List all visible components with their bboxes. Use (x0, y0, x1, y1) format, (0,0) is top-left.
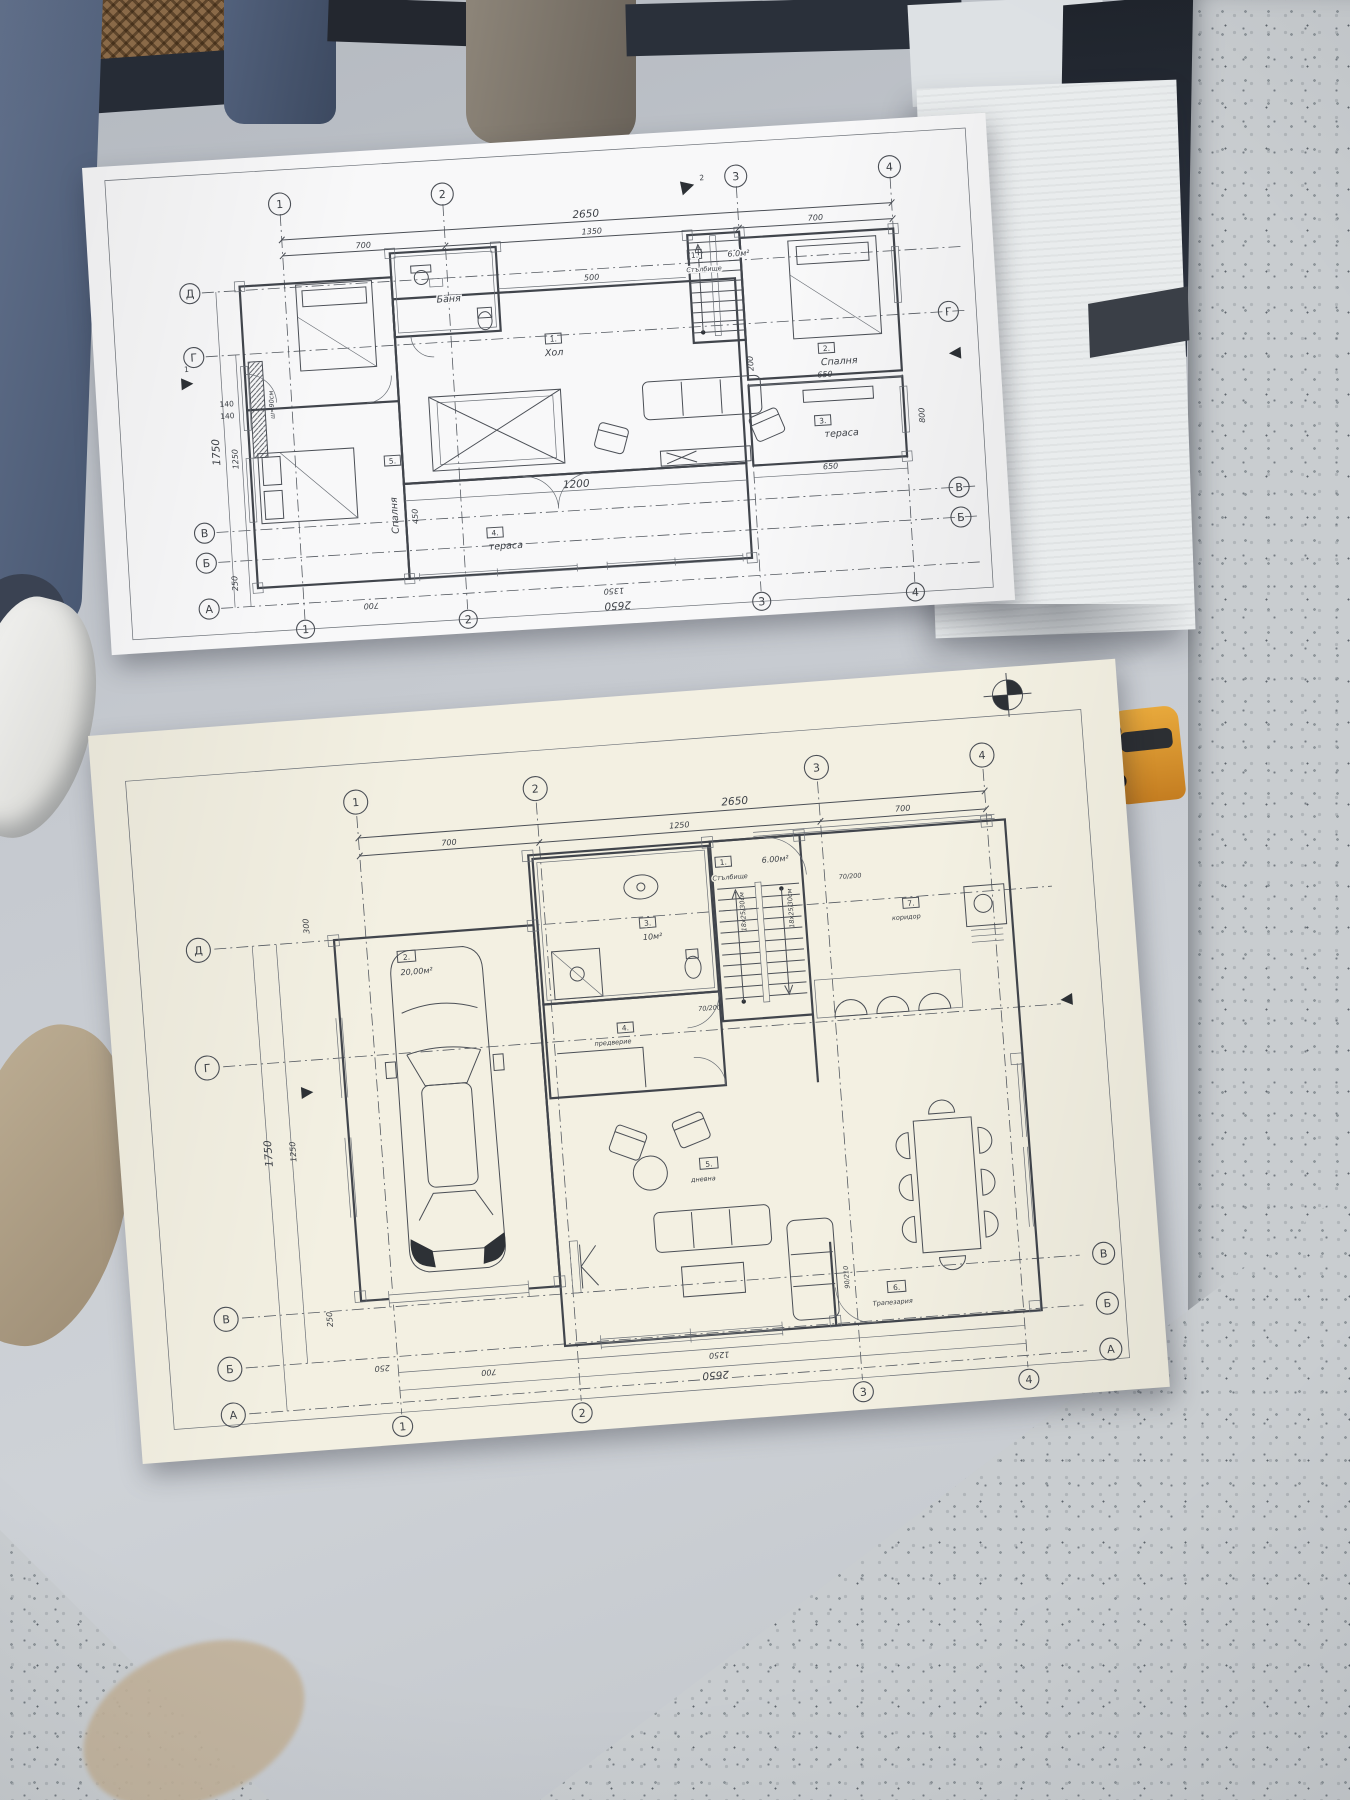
dim-250-bottom: 250 (374, 1363, 390, 1373)
dim-1250-v: 1250 (288, 1141, 299, 1162)
stairs-area: 6.00м² (761, 854, 789, 865)
dim-700-bottom: 700 (481, 1367, 497, 1377)
tag-dining: 6. (893, 1283, 901, 1293)
dim-700-left: 700 (355, 241, 371, 251)
tag-hall: 1. (549, 334, 557, 343)
axis-col-4b: 4 (1025, 1373, 1033, 1386)
dim-1250: 1250 (669, 820, 690, 831)
dim-200: 200 (746, 356, 756, 372)
dim-2650: 2650 (721, 795, 749, 809)
axis-col-1: 1 (352, 796, 360, 809)
axis-col-3b: 3 (758, 595, 766, 608)
axis-col-1b: 1 (302, 623, 310, 636)
section-mark-2: 2 (699, 173, 705, 182)
dim-2650-bottom: 2650 (702, 1368, 730, 1382)
room-label-dining: Трапезария (872, 1297, 913, 1308)
dim-250: 250 (230, 576, 240, 592)
bedroom-bottom-left-furniture (258, 448, 358, 524)
bedroom-top-left-furniture (244, 281, 382, 458)
dim-700-left: 700 (441, 838, 457, 848)
room-label-terrace4: тераса (488, 540, 523, 553)
axis-row-v: В (200, 527, 208, 540)
tag-entry: 4. (622, 1023, 630, 1033)
garage-area: 20,00м² (400, 966, 434, 977)
axis-col-1b: 1 (399, 1420, 407, 1433)
room-terrace4: 4. тераса (487, 526, 524, 553)
walls (238, 223, 913, 588)
section-marks (298, 993, 1075, 1099)
dim-700-right: 700 (808, 213, 824, 223)
dim-1350: 1350 (581, 226, 602, 236)
toy-car-windshield (1120, 727, 1174, 752)
windows (324, 814, 1040, 1368)
door-size-corridor: 70/200 (838, 871, 861, 881)
room-hall: 1. Хол (543, 333, 564, 359)
axis-row-v-right: В (1099, 1247, 1108, 1261)
dim-1250-bottom: 1250 (709, 1350, 730, 1361)
dim-2650: 2650 (572, 208, 600, 222)
axis-col-2b: 2 (578, 1407, 586, 1420)
floor-plan-sheet-ground: 1 2 3 4 1 2 3 4 Д Г В Б А В Б А (88, 659, 1170, 1464)
axis-grid (205, 764, 1088, 1425)
axis-row-b: Б (202, 557, 210, 570)
room-label-corridor: коридор (892, 912, 921, 922)
axis-row-b-right: Б (957, 511, 965, 524)
door-size-bath: 70/200 (698, 1003, 721, 1013)
walls (329, 819, 1042, 1360)
floor-plan-sheet-upper: 1 2 3 4 1 2 3 4 Д Г В Б А Г В Б (82, 113, 1015, 655)
section-marks: 1 2 (170, 158, 961, 406)
tag-bedroom5: 5. (389, 456, 397, 465)
stairs-area: 6.0м² (727, 248, 750, 258)
dim-250: 250 (325, 1312, 335, 1328)
dark-strap (327, 0, 484, 47)
axis-col-3: 3 (732, 170, 740, 183)
tag-bath: 3. (644, 918, 652, 928)
axis-row-b: Б (226, 1363, 235, 1377)
dining-room: 6. Трапезария (858, 1096, 1004, 1307)
dim-1250: 1250 (230, 449, 240, 470)
dim-650-a: 650 (817, 370, 833, 380)
axis-col-2: 2 (531, 782, 539, 795)
dim-700-right: 700 (895, 804, 911, 814)
dim-2650-bottom: 2650 (604, 598, 632, 612)
tag-terrace3: 3. (819, 416, 827, 425)
room-label-stairs: Стълбище (712, 872, 748, 883)
garage: 2. 20,00м² (377, 944, 519, 1274)
door-arcs (243, 326, 592, 527)
axis-row-a: А (205, 603, 214, 616)
axis-col-3b: 3 (859, 1385, 867, 1398)
axis-row-a-right: А (1107, 1343, 1116, 1357)
axis-row-v: В (222, 1313, 231, 1327)
photo-of-floor-plans: 1 2 3 4 1 2 3 4 Д Г В Б А Г В Б (0, 0, 1350, 1800)
tag-stairs: 1. (691, 251, 699, 260)
axis-col-4: 4 (886, 161, 894, 174)
room-label-living: дневна (690, 1174, 716, 1184)
room-label-stairs: Стълбище (686, 264, 722, 274)
room-entry: 4. предверие (555, 1021, 646, 1093)
dim-700-bottom: 700 (363, 601, 379, 611)
foam-model-gap (1088, 286, 1189, 358)
axis-row-g: Г (190, 351, 198, 364)
dim-1200: 1200 (563, 478, 591, 492)
dim-650-b: 650 (823, 461, 839, 471)
north-compass-icon (982, 671, 1033, 718)
room-bedroom2: 2. Спалня (818, 341, 858, 368)
tag-stairs: 1. (719, 857, 727, 867)
dim-140-a: 140 (219, 399, 234, 409)
axis-col-3: 3 (812, 761, 820, 774)
stairs-ground: 18х25/30см 18х25/30см 1. 6.00м² Стълбище (711, 851, 808, 1005)
axis-row-g-right: Г (945, 305, 953, 318)
living-room: 5. дневна (560, 1102, 839, 1337)
axis-row-d: Д (185, 287, 195, 301)
axis-col-1: 1 (276, 198, 284, 211)
person-gray-trousers (466, 0, 636, 144)
axis-col-2b: 2 (464, 613, 472, 626)
axis-bubbles: 1 2 3 4 1 2 3 4 Д Г В Б А В Б А (175, 736, 1124, 1450)
upper-floor-plan: 1 2 3 4 1 2 3 4 Д Г В Б А Г В Б (82, 113, 1015, 655)
dim-1350-bottom: 1350 (603, 586, 624, 596)
room-label-hall: Хол (544, 347, 564, 359)
tag-living: 5. (705, 1159, 713, 1169)
dim-800: 800 (917, 407, 927, 423)
bathroom-ground: 3. 10м² (537, 850, 715, 1000)
axis-col-2: 2 (438, 188, 446, 201)
room-label-entry: предверие (594, 1037, 632, 1048)
door-size-living: 90/210 (842, 1265, 852, 1288)
bath-area: 10м² (643, 931, 664, 941)
dim-450: 450 (410, 508, 420, 524)
room-label-bedroom5: Спалня (389, 497, 402, 535)
dim-300: 300 (301, 918, 311, 934)
dim-140-b: 140 (220, 411, 235, 421)
dim-1750: 1750 (262, 1140, 276, 1168)
tag-corridor: 7. (907, 899, 915, 909)
tag-garage: 2. (403, 952, 411, 962)
room-label-terrace3: тераса (824, 427, 859, 440)
room-terrace3: 3. тераса (814, 413, 859, 441)
axis-row-g: Г (203, 1062, 211, 1075)
room-label-bedroom2: Спалня (821, 355, 859, 368)
tag-bedroom2: 2. (823, 344, 831, 353)
car-top-view (377, 944, 519, 1274)
person-jeans-top (224, 0, 336, 124)
room-label-bath: Баня (436, 293, 461, 305)
axis-col-4b: 4 (912, 586, 920, 599)
dim-500: 500 (584, 273, 600, 283)
axis-col-4: 4 (978, 749, 986, 762)
axis-row-v-right: В (955, 481, 963, 494)
room-corridor: 7. коридор (808, 884, 1012, 1018)
axis-row-b-right: Б (1103, 1297, 1112, 1311)
axis-bubbles: 1 2 3 4 1 2 3 4 Д Г В Б А Г В Б (174, 152, 976, 645)
section-mark-1: 1 (184, 365, 190, 374)
axis-row-a: А (229, 1409, 238, 1423)
ground-floor-plan: 1 2 3 4 1 2 3 4 Д Г В Б А В Б А (88, 659, 1170, 1464)
axis-row-d: Д (194, 944, 204, 958)
person-jeans-left (0, 0, 103, 632)
tag-terrace4: 4. (491, 528, 499, 537)
dim-1750: 1750 (210, 438, 224, 466)
